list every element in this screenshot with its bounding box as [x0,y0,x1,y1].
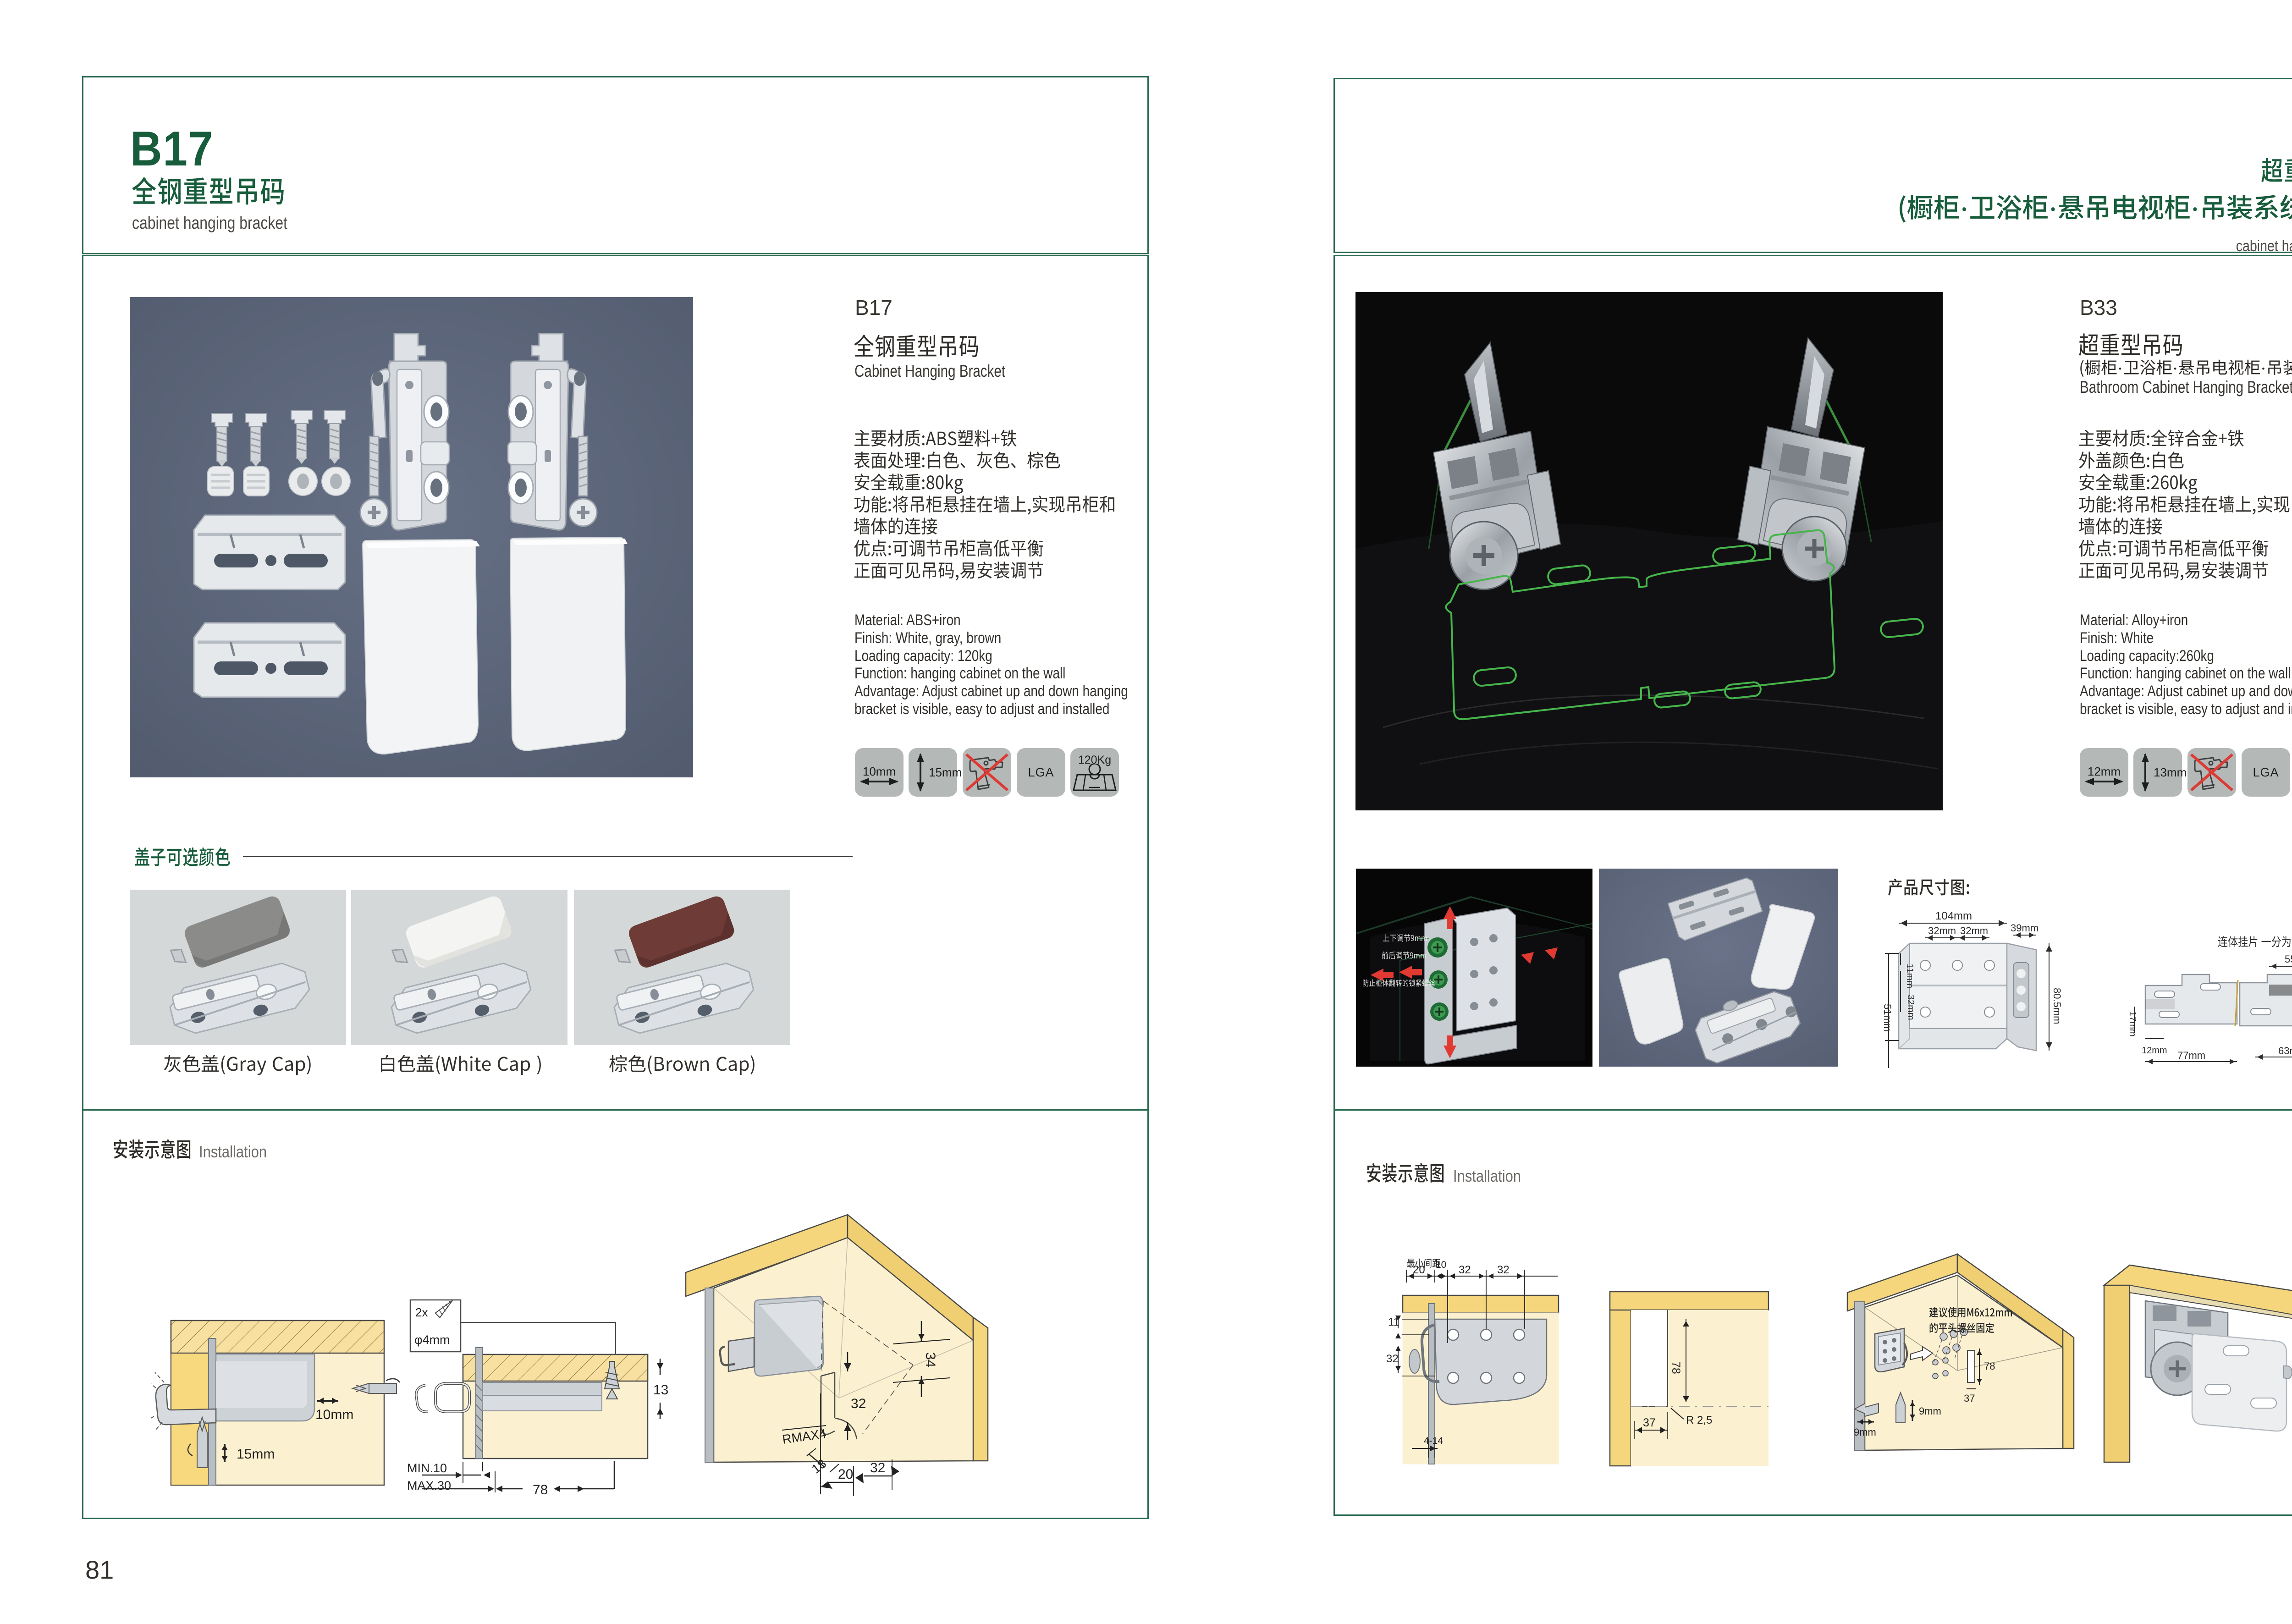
svg-text:MAX.30: MAX.30 [407,1479,451,1492]
svg-text:12mm: 12mm [2142,1046,2167,1056]
svg-text:2x: 2x [415,1305,428,1319]
svg-text:32mm: 32mm [1928,925,1956,936]
svg-text:17mm: 17mm [2127,1011,2138,1037]
svg-text:32: 32 [851,1396,866,1411]
svg-text:37: 37 [1643,1416,1656,1429]
svg-text:20: 20 [838,1467,853,1482]
svg-text:34: 34 [923,1352,938,1367]
svg-text:20: 20 [1413,1264,1425,1276]
svg-text:32mm: 32mm [1906,995,1916,1020]
svg-text:MIN.10: MIN.10 [407,1461,447,1475]
svg-text:φ4mm: φ4mm [414,1333,450,1347]
svg-text:4-14: 4-14 [1424,1436,1443,1446]
svg-text:11: 11 [1388,1316,1399,1328]
svg-text:32: 32 [870,1460,885,1475]
svg-text:9mm: 9mm [1919,1405,1941,1417]
svg-text:63mm: 63mm [2278,1045,2292,1057]
svg-text:R 2,5: R 2,5 [1686,1414,1712,1426]
svg-text:39mm: 39mm [2011,922,2039,934]
svg-text:78: 78 [1669,1361,1682,1374]
svg-text:55mm: 55mm [2285,953,2292,965]
svg-text:11mm: 11mm [1905,963,1915,988]
svg-text:15mm: 15mm [237,1447,275,1462]
svg-text:32: 32 [1459,1264,1471,1276]
svg-text:80.5mm: 80.5mm [2051,988,2063,1024]
svg-text:10: 10 [1436,1260,1446,1270]
svg-text:32: 32 [1386,1353,1399,1365]
svg-text:37: 37 [1964,1393,1975,1404]
svg-text:78: 78 [533,1482,548,1494]
svg-text:32mm: 32mm [1960,925,1988,936]
svg-text:77mm: 77mm [2177,1050,2205,1061]
svg-text:9mm: 9mm [1854,1426,1876,1438]
svg-text:104mm: 104mm [1935,910,1972,922]
svg-text:51mm: 51mm [1882,1004,1893,1032]
svg-text:32: 32 [1497,1264,1510,1276]
svg-text:78: 78 [1984,1360,1995,1372]
svg-text:10mm: 10mm [315,1407,353,1422]
